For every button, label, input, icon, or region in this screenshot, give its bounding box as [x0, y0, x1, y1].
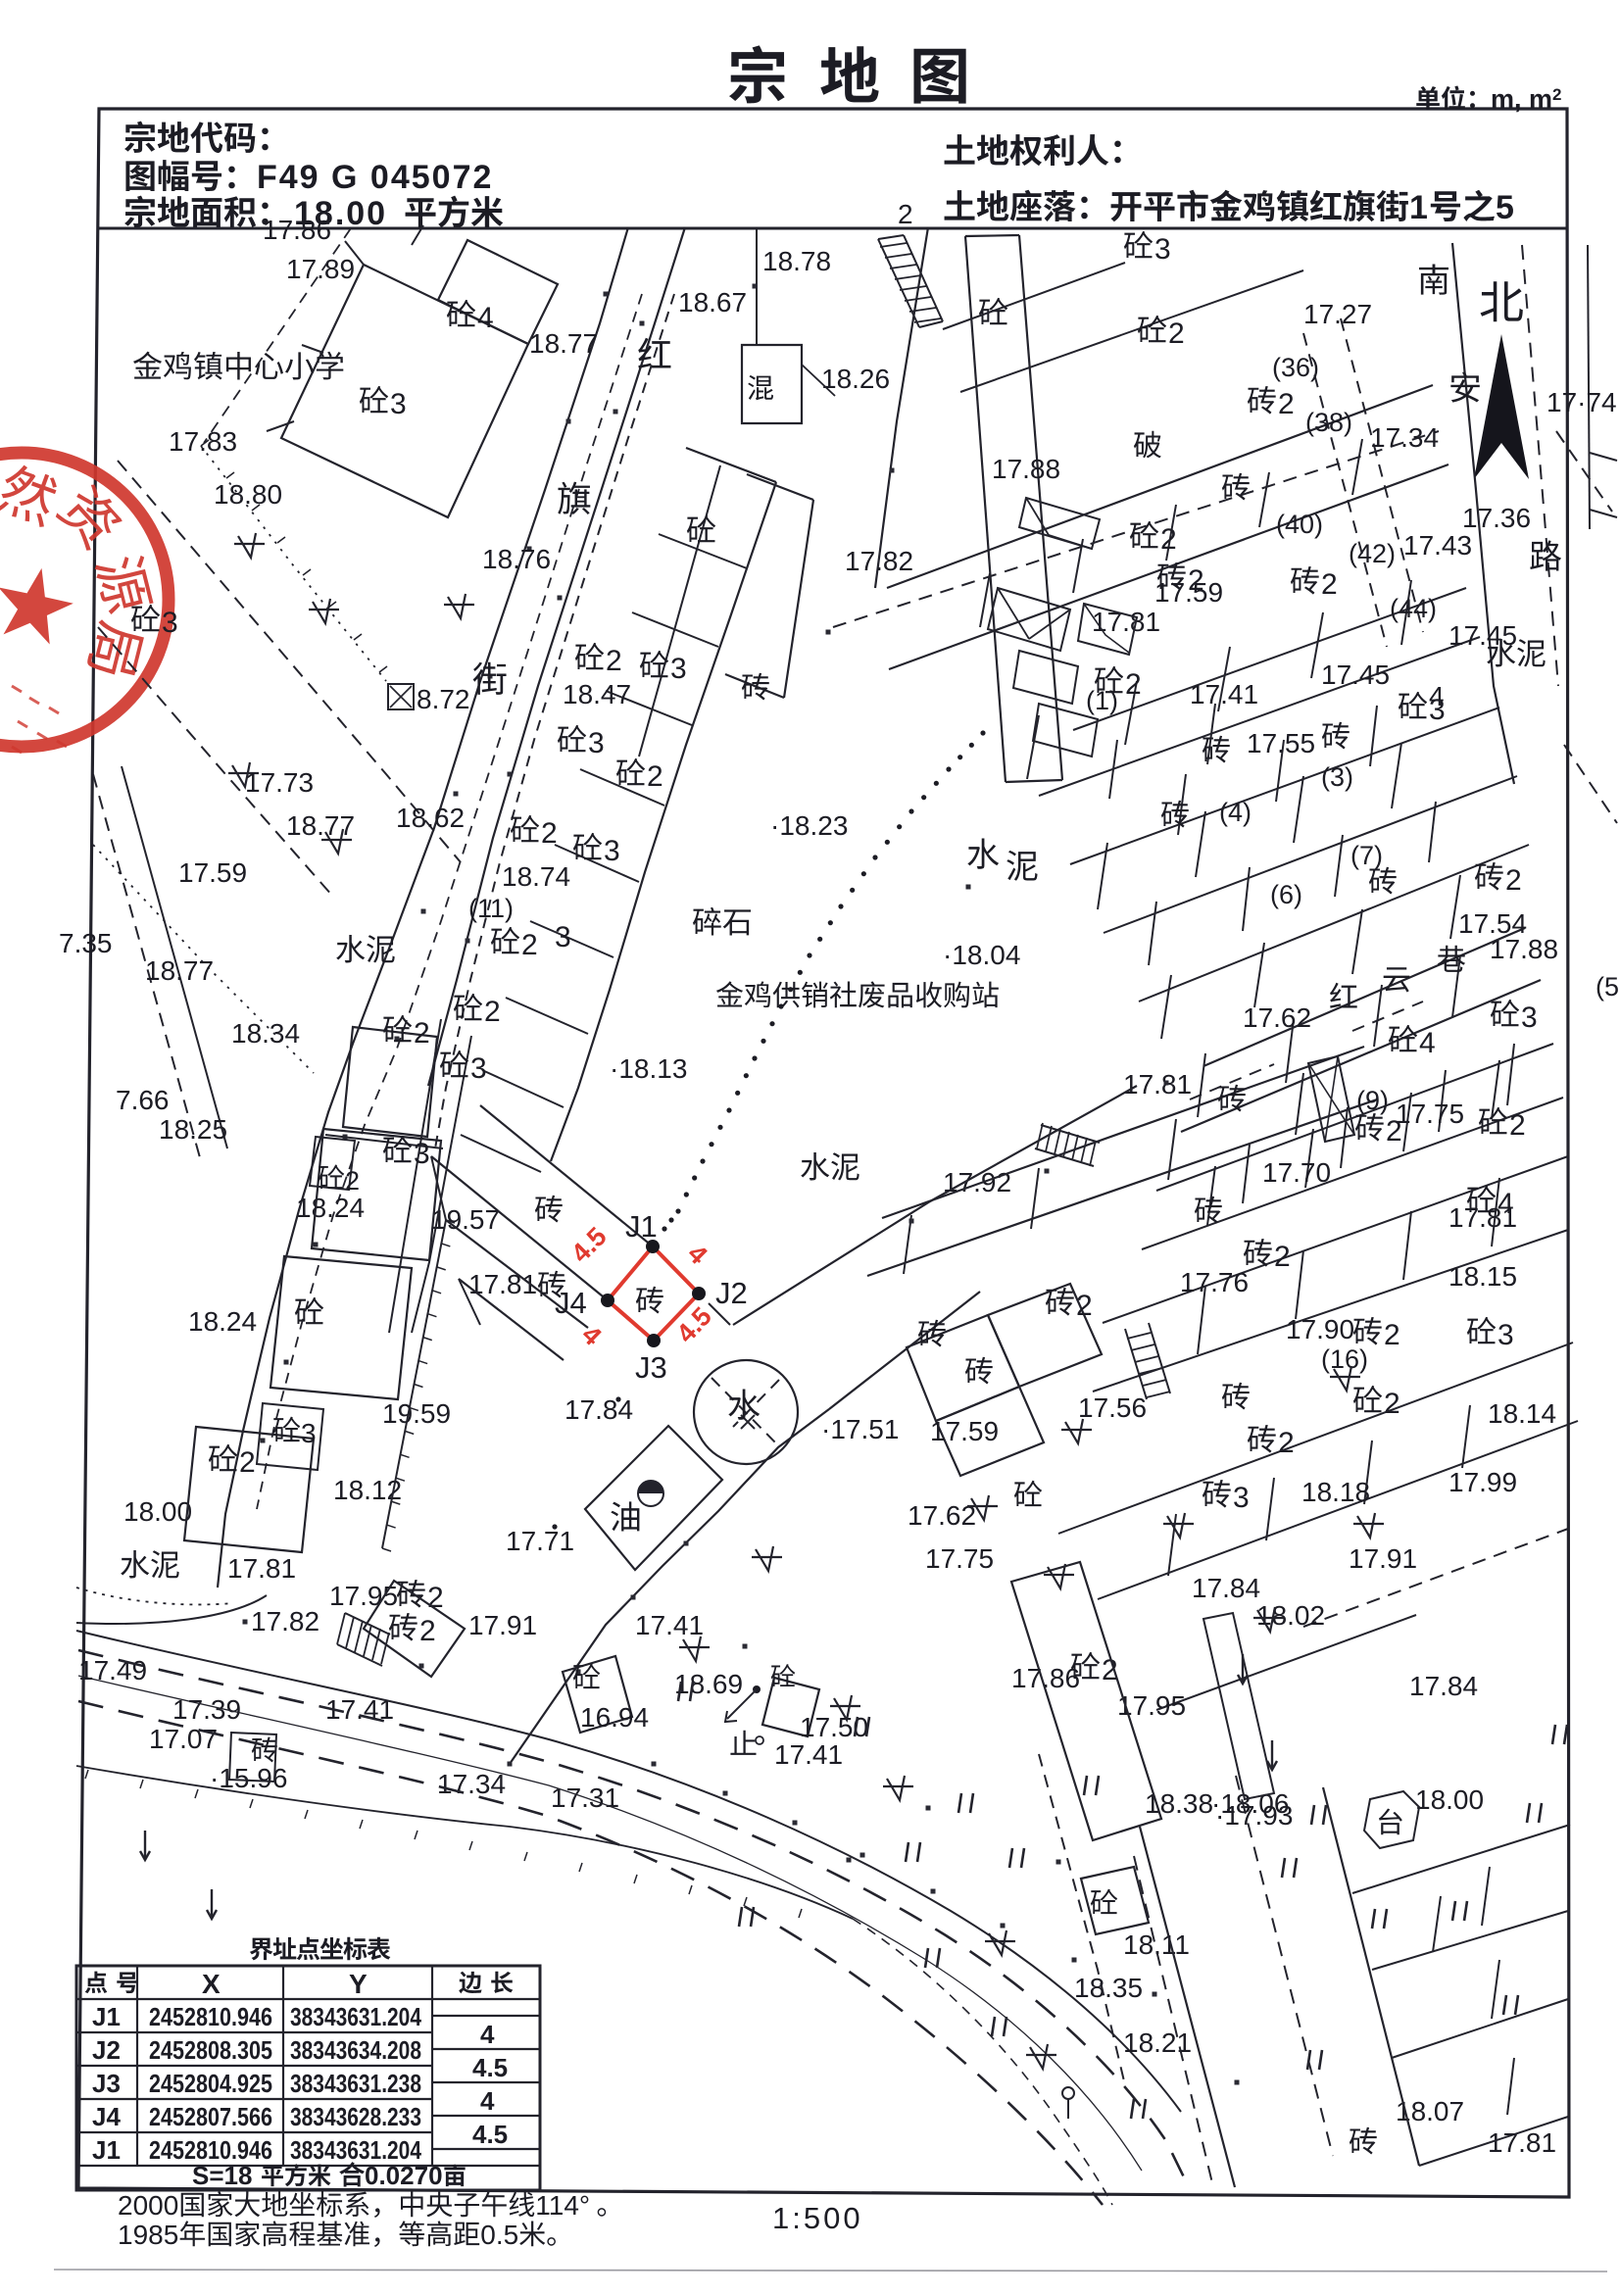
svg-text:(1): (1)	[1086, 686, 1118, 715]
svg-text:3: 3	[1233, 1482, 1250, 1514]
svg-text:(6): (6)	[1270, 880, 1302, 909]
svg-text:(5: (5	[1595, 972, 1619, 1001]
svg-text:19.57: 19.57	[431, 1204, 500, 1235]
svg-text:17.45: 17.45	[1448, 620, 1517, 651]
svg-text:17.62: 17.62	[1243, 1002, 1311, 1033]
svg-text:F49 G 045072: F49 G 045072	[257, 159, 493, 196]
svg-text:2: 2	[541, 817, 558, 850]
svg-text:2: 2	[1274, 1241, 1291, 1273]
svg-text:·18.04: ·18.04	[943, 940, 1020, 970]
svg-text:2: 2	[1278, 1427, 1295, 1459]
svg-text:2452808.305: 2452808.305	[149, 2035, 272, 2065]
svg-text:18.11: 18.11	[1123, 1930, 1190, 1960]
svg-text:J1: J1	[92, 2002, 121, 2031]
svg-text:114°: 114°	[535, 2190, 590, 2221]
svg-text:2: 2	[1384, 1388, 1400, 1420]
svg-text:19.59: 19.59	[382, 1398, 451, 1429]
svg-text:J1: J1	[92, 2135, 121, 2165]
svg-text:4: 4	[477, 302, 494, 334]
svg-text:2: 2	[1384, 1319, 1400, 1351]
svg-text:17.70: 17.70	[1262, 1157, 1331, 1188]
svg-text:38343631.238: 38343631.238	[290, 2069, 421, 2098]
svg-text:(9): (9)	[1356, 1086, 1389, 1115]
svg-text:18.15: 18.15	[1448, 1261, 1517, 1292]
svg-text:5: 5	[1496, 189, 1514, 226]
svg-text:2452807.566: 2452807.566	[149, 2102, 272, 2131]
svg-text:17.82: 17.82	[845, 546, 913, 576]
svg-text:4: 4	[480, 2020, 495, 2049]
svg-text:17.95: 17.95	[329, 1581, 398, 1611]
svg-text:18.00: 18.00	[1415, 1784, 1484, 1815]
svg-text:2: 2	[1125, 668, 1142, 701]
svg-text:17.91: 17.91	[1349, 1543, 1417, 1574]
svg-text:18.26: 18.26	[821, 364, 890, 394]
svg-text:18.24: 18.24	[188, 1306, 257, 1337]
svg-text:(11): (11)	[468, 894, 514, 923]
svg-text:17.59: 17.59	[1154, 577, 1223, 608]
svg-text:2: 2	[1160, 523, 1177, 556]
svg-text:17.43: 17.43	[1403, 530, 1472, 561]
svg-text:17.81: 17.81	[1123, 1069, 1192, 1099]
svg-text:18.77: 18.77	[145, 955, 214, 986]
svg-text:17.07: 17.07	[149, 1724, 218, 1754]
svg-text:17.39: 17.39	[172, 1694, 241, 1725]
svg-text:J4: J4	[92, 2102, 121, 2131]
svg-text:17.71: 17.71	[506, 1526, 574, 1556]
svg-text:S=18: S=18	[192, 2161, 252, 2190]
svg-text:18.38: 18.38	[1145, 1788, 1213, 1819]
svg-text:17.34: 17.34	[437, 1769, 506, 1799]
svg-text:3: 3	[301, 1418, 317, 1448]
svg-text:17.81: 17.81	[227, 1553, 296, 1584]
svg-text:7.66: 7.66	[116, 1085, 170, 1115]
svg-text:2452804.925: 2452804.925	[149, 2069, 272, 2098]
svg-text:2: 2	[484, 996, 501, 1028]
svg-text:3: 3	[390, 388, 407, 420]
svg-text:17.56: 17.56	[1078, 1392, 1147, 1423]
svg-text:17.88: 17.88	[992, 454, 1060, 484]
svg-text:17.50: 17.50	[800, 1712, 868, 1742]
svg-text:3: 3	[555, 921, 571, 953]
svg-text:2: 2	[521, 929, 538, 961]
svg-text:2: 2	[239, 1446, 256, 1479]
svg-text:16.94: 16.94	[580, 1702, 649, 1733]
svg-text:2: 2	[414, 1017, 430, 1050]
svg-text:18.25: 18.25	[159, 1114, 227, 1145]
svg-text:17.76: 17.76	[1180, 1267, 1249, 1297]
svg-text:J3: J3	[635, 1350, 667, 1385]
svg-text:17.59: 17.59	[930, 1416, 999, 1446]
svg-text:17.41: 17.41	[1190, 679, 1258, 709]
svg-text:2: 2	[647, 760, 663, 793]
svg-text:4: 4	[480, 2086, 495, 2116]
svg-text:3: 3	[588, 727, 605, 759]
svg-text:0.5: 0.5	[480, 2220, 518, 2250]
svg-text:合0.0270: 合0.0270	[339, 2161, 443, 2190]
svg-text:2: 2	[1278, 388, 1295, 420]
svg-text:4: 4	[1429, 681, 1445, 711]
svg-text:17.27: 17.27	[1303, 299, 1372, 329]
svg-text:2: 2	[345, 1166, 360, 1196]
svg-text:18.77: 18.77	[286, 810, 355, 841]
svg-text:(7): (7)	[1350, 841, 1383, 870]
svg-text:18.78: 18.78	[762, 246, 831, 276]
svg-text:17.82: 17.82	[251, 1606, 319, 1637]
svg-text:J4: J4	[555, 1286, 587, 1320]
svg-text:17.73: 17.73	[245, 767, 314, 798]
svg-text:2: 2	[419, 1615, 436, 1647]
svg-text:17.34: 17.34	[1370, 422, 1439, 453]
svg-text:2: 2	[1168, 318, 1185, 350]
svg-text:17.45: 17.45	[1321, 659, 1390, 690]
svg-text:4.5: 4.5	[472, 2053, 508, 2082]
svg-text:·18.06: ·18.06	[1211, 1788, 1289, 1819]
svg-text:18.14: 18.14	[1488, 1398, 1556, 1429]
svg-text:J1: J1	[625, 1209, 658, 1244]
svg-text:17.81: 17.81	[1448, 1202, 1517, 1233]
svg-text:18.74: 18.74	[502, 861, 570, 892]
svg-text:17.83: 17.83	[169, 426, 237, 457]
svg-text:3: 3	[470, 1052, 487, 1085]
svg-text:18.77: 18.77	[529, 328, 598, 359]
svg-text:(42): (42)	[1349, 539, 1396, 568]
svg-text:8.72: 8.72	[417, 684, 470, 714]
svg-text:18.34: 18.34	[231, 1018, 300, 1049]
svg-text:(36): (36)	[1272, 353, 1319, 382]
svg-text:18.67: 18.67	[678, 287, 747, 318]
svg-text:38343634.208: 38343634.208	[290, 2035, 421, 2065]
svg-text:3: 3	[1521, 1001, 1538, 1034]
svg-text:1: 1	[1409, 189, 1428, 226]
svg-text:18.35: 18.35	[1074, 1973, 1143, 2003]
svg-text:17.36: 17.36	[1462, 503, 1531, 533]
svg-text:2: 2	[1076, 1290, 1093, 1322]
svg-text:17.90: 17.90	[1286, 1314, 1354, 1344]
svg-text:7.35: 7.35	[59, 928, 113, 958]
svg-text:J2: J2	[715, 1276, 748, 1310]
svg-text:(4): (4)	[1219, 798, 1252, 827]
svg-text:17.99: 17.99	[1448, 1467, 1517, 1497]
svg-text:·18.23: ·18.23	[770, 810, 848, 841]
svg-text:1985: 1985	[118, 2220, 178, 2250]
svg-text:2: 2	[898, 199, 913, 229]
svg-text:3: 3	[1154, 233, 1171, 266]
svg-text:17.55: 17.55	[1247, 728, 1315, 758]
svg-text:3: 3	[1497, 1319, 1514, 1351]
svg-text:18.47: 18.47	[563, 679, 631, 709]
svg-text:18.62: 18.62	[396, 803, 465, 833]
svg-text:X: X	[202, 1969, 221, 1999]
svg-text:1:500: 1:500	[772, 2201, 863, 2235]
svg-text:17.75: 17.75	[1396, 1099, 1464, 1129]
svg-text:·18.13: ·18.13	[610, 1053, 687, 1084]
svg-text:(16): (16)	[1321, 1344, 1368, 1374]
svg-text:17.49: 17.49	[78, 1655, 147, 1685]
svg-text:17.75: 17.75	[925, 1543, 994, 1574]
svg-text:(44): (44)	[1390, 594, 1437, 623]
svg-text:18.69: 18.69	[674, 1669, 743, 1699]
svg-text:4.5: 4.5	[472, 2120, 508, 2149]
svg-text:38343631.204: 38343631.204	[290, 2002, 421, 2031]
svg-text:3: 3	[604, 835, 620, 867]
svg-text:J3: J3	[92, 2069, 121, 2098]
svg-text:18.80: 18.80	[214, 479, 282, 510]
svg-text:2: 2	[1505, 864, 1522, 897]
svg-text:Y: Y	[349, 1969, 368, 1999]
svg-text:17.86: 17.86	[263, 215, 331, 245]
svg-text:(40): (40)	[1276, 510, 1323, 539]
svg-text:17.89: 17.89	[286, 254, 355, 284]
svg-text:38343628.233: 38343628.233	[290, 2102, 421, 2131]
svg-text:18.00: 18.00	[123, 1496, 192, 1527]
svg-text:18.76: 18.76	[482, 544, 551, 574]
svg-text:(3): (3)	[1321, 762, 1353, 792]
svg-text:17.91: 17.91	[468, 1610, 537, 1640]
svg-text:17.62: 17.62	[908, 1500, 976, 1531]
svg-text:3: 3	[670, 653, 687, 685]
svg-text:2452810.946: 2452810.946	[149, 2002, 272, 2031]
svg-text:17.84: 17.84	[565, 1394, 633, 1425]
svg-text:17.41: 17.41	[774, 1739, 843, 1770]
svg-text:3: 3	[414, 1138, 430, 1170]
svg-text:3: 3	[162, 607, 178, 639]
svg-text:2000: 2000	[118, 2190, 178, 2221]
svg-text:2: 2	[1509, 1109, 1526, 1142]
svg-text:4: 4	[1419, 1027, 1436, 1059]
svg-text:18.18: 18.18	[1301, 1477, 1370, 1507]
svg-text:17·74: 17·74	[1546, 387, 1617, 417]
svg-text:17.95: 17.95	[1117, 1690, 1186, 1721]
svg-text:2: 2	[606, 645, 622, 677]
svg-text:(38): (38)	[1305, 408, 1352, 437]
svg-text:17.59: 17.59	[178, 857, 247, 888]
svg-text:·17.51: ·17.51	[821, 1414, 899, 1444]
svg-text:17.84: 17.84	[1409, 1671, 1478, 1701]
svg-text:m, m2: m, m2	[1491, 84, 1562, 114]
svg-text:2: 2	[1321, 568, 1338, 601]
svg-text:J2: J2	[92, 2035, 121, 2065]
svg-text:17.84: 17.84	[1192, 1573, 1260, 1603]
svg-text:18.24: 18.24	[296, 1193, 365, 1223]
svg-text:17.41: 17.41	[635, 1610, 704, 1640]
svg-text:17.88: 17.88	[1490, 934, 1558, 964]
svg-text:17.81: 17.81	[1092, 607, 1160, 637]
